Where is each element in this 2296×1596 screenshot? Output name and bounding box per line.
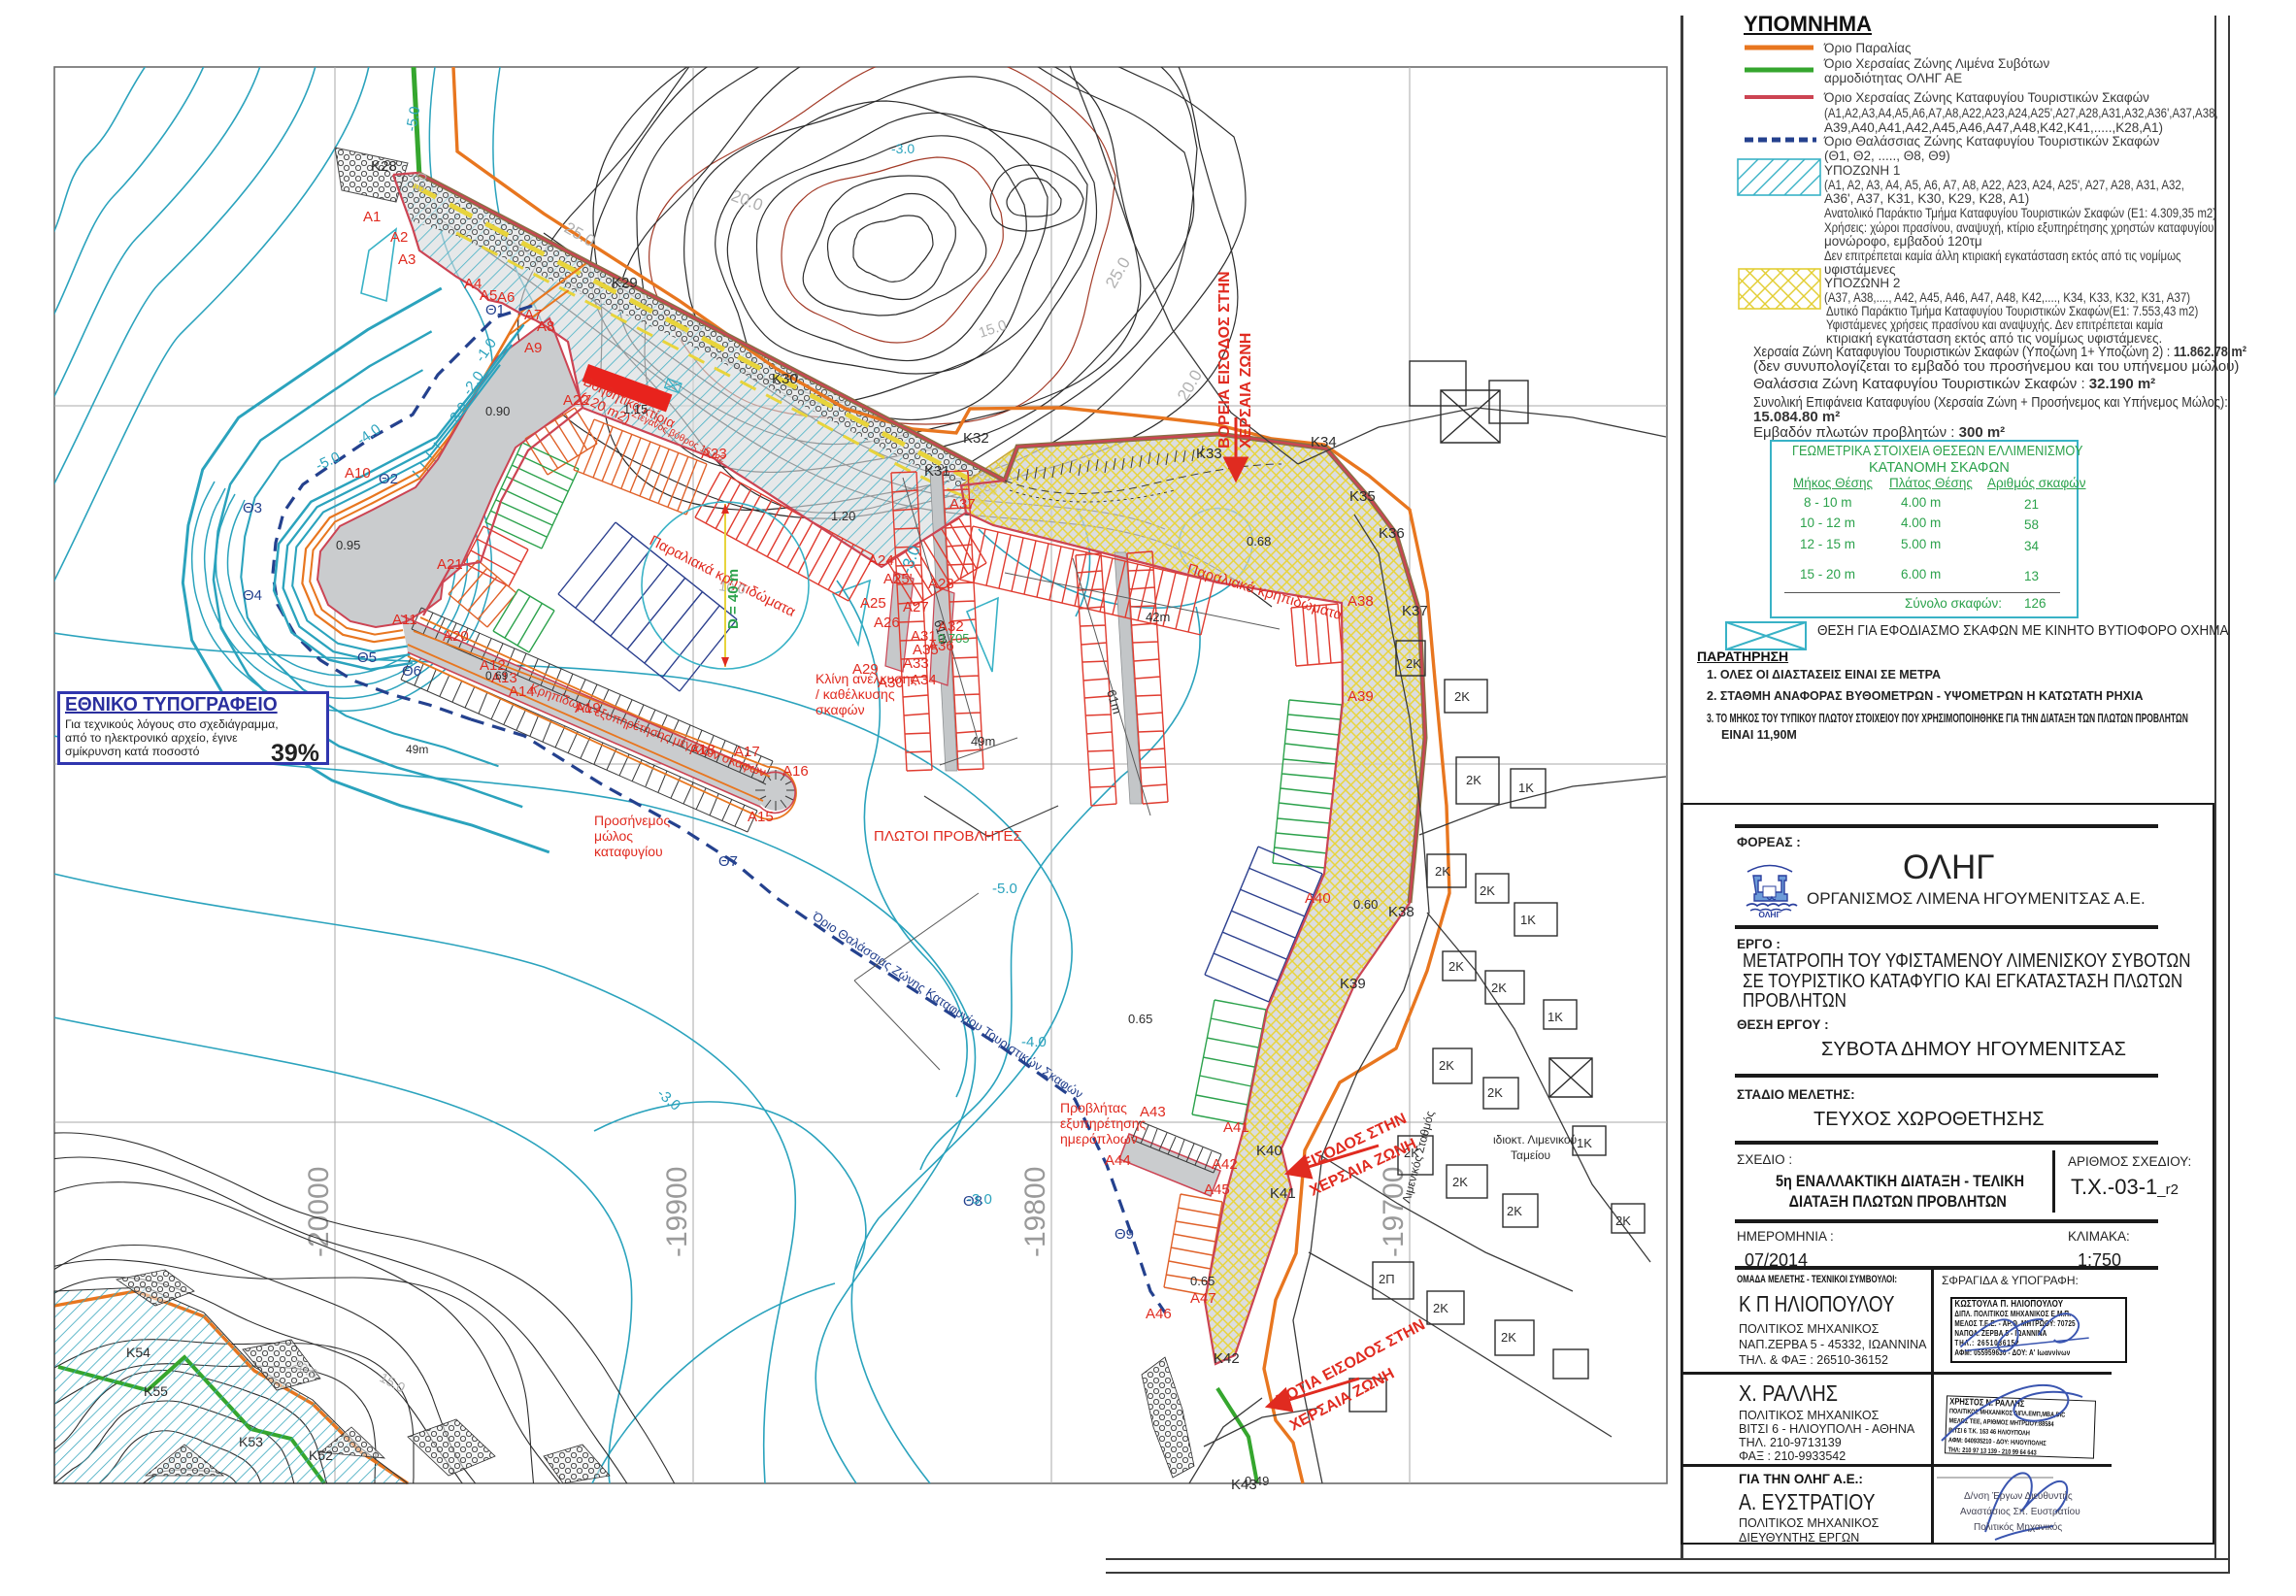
svg-text:25.0: 25.0 [1102, 254, 1134, 291]
svg-text:K54: K54 [126, 1345, 150, 1360]
svg-text:0.65: 0.65 [1128, 1012, 1152, 1026]
svg-text:ιδιοκτ. Λιμενικού: ιδιοκτ. Λιμενικού [1493, 1133, 1577, 1147]
svg-text:Θ1: Θ1 [485, 302, 505, 318]
svg-text:-19800: -19800 [1019, 1167, 1051, 1257]
svg-text:1K: 1K [1547, 1010, 1563, 1024]
svg-text:ΧΕΡΣΑΙΑ ΖΩΝΗ: ΧΕΡΣΑΙΑ ΖΩΝΗ [1238, 333, 1254, 449]
svg-text:A26: A26 [874, 615, 900, 631]
svg-text:Θ4: Θ4 [243, 587, 262, 604]
svg-text:2K: 2K [1452, 1175, 1468, 1189]
svg-text:A41: A41 [1223, 1119, 1249, 1136]
svg-text:A8: A8 [537, 318, 554, 335]
svg-text:A15: A15 [748, 809, 774, 825]
svg-text:K36: K36 [1379, 525, 1405, 542]
svg-text:A38: A38 [1348, 593, 1374, 610]
svg-text:-5.0: -5.0 [992, 881, 1017, 897]
svg-text:A37: A37 [949, 496, 976, 513]
svg-text:2K: 2K [1448, 959, 1464, 974]
svg-text:42m: 42m [1146, 610, 1170, 624]
svg-text:0.60: 0.60 [1353, 897, 1378, 912]
svg-text:K34: K34 [1311, 434, 1337, 450]
svg-text:Αναστάσιος Σπ. Ευστρατίου: Αναστάσιος Σπ. Ευστρατίου [1960, 1506, 2080, 1517]
svg-text:15.0: 15.0 [378, 1370, 409, 1396]
svg-text:Θ7: Θ7 [718, 853, 738, 870]
svg-text:καταφυγίου: καταφυγίου [594, 844, 663, 859]
svg-text:0.49: 0.49 [1245, 1474, 1269, 1488]
svg-text:Θ5: Θ5 [357, 649, 377, 666]
svg-text:2K: 2K [1454, 689, 1470, 704]
svg-text:2K: 2K [1487, 1085, 1503, 1100]
svg-text:49m: 49m [971, 734, 995, 748]
svg-text:2K: 2K [1501, 1330, 1516, 1345]
svg-text:/ καθέλκυσης: / καθέλκυσης [815, 686, 895, 702]
svg-text:2K: 2K [1507, 1204, 1522, 1218]
svg-text:2K: 2K [1480, 883, 1495, 898]
svg-text:-3.0: -3.0 [967, 1191, 992, 1208]
svg-text:Προσήνεμος: Προσήνεμος [594, 813, 670, 828]
svg-text:2K: 2K [1615, 1214, 1631, 1228]
svg-text:A9: A9 [524, 340, 542, 356]
svg-text:A47: A47 [1190, 1290, 1216, 1307]
svg-text:ΟΛΗΓ: ΟΛΗΓ [1758, 910, 1780, 918]
svg-text:Όριο Θαλάσσιας Ζώνης Καταφυγίο: Όριο Θαλάσσιας Ζώνης Καταφυγίου Τουριστι… [809, 908, 1085, 1101]
svg-text:K52: K52 [309, 1447, 333, 1463]
svg-text:A46: A46 [1146, 1306, 1172, 1322]
svg-text:K42: K42 [1214, 1350, 1240, 1367]
svg-text:K38: K38 [1388, 904, 1414, 920]
svg-text:-4.0: -4.0 [354, 421, 384, 449]
svg-text:2K: 2K [1439, 1058, 1454, 1073]
svg-text:A16: A16 [782, 763, 809, 780]
svg-text:0.90: 0.90 [485, 404, 510, 418]
svg-text:A39: A39 [1348, 688, 1374, 705]
svg-text:1K: 1K [1577, 1136, 1592, 1150]
svg-text:Θ6: Θ6 [402, 663, 421, 680]
svg-text:A45: A45 [1204, 1181, 1230, 1198]
svg-text:15.0: 15.0 [977, 317, 1009, 342]
svg-text:0.705: 0.705 [938, 631, 970, 646]
svg-text:2K: 2K [1433, 1301, 1448, 1315]
svg-text:A10: A10 [345, 465, 371, 482]
svg-text:D = 40 m: D = 40 m [725, 569, 742, 629]
svg-text:A44: A44 [1105, 1152, 1131, 1169]
svg-text:A27: A27 [903, 599, 929, 615]
svg-text:Θ3: Θ3 [243, 500, 262, 516]
svg-text:A20: A20 [443, 628, 469, 645]
svg-text:K31: K31 [924, 463, 950, 480]
svg-text:σκαφών: σκαφών [815, 702, 865, 717]
svg-text:K28: K28 [371, 158, 397, 175]
svg-text:0.68: 0.68 [1247, 534, 1271, 549]
svg-text:-3.0: -3.0 [653, 1085, 683, 1114]
svg-text:-4.0: -4.0 [1021, 1034, 1047, 1050]
svg-text:A28: A28 [928, 576, 954, 592]
svg-text:Ταμείου: Ταμείου [1511, 1148, 1550, 1162]
svg-text:Κλίνη ανέλκυσης: Κλίνη ανέλκυσης [815, 671, 917, 686]
svg-text:A25: A25 [860, 595, 886, 612]
svg-text:K39: K39 [1340, 976, 1366, 992]
svg-text:A11: A11 [392, 612, 417, 628]
svg-text:A21: A21 [437, 556, 463, 573]
svg-text:A42: A42 [1212, 1156, 1238, 1173]
svg-text:ημερόπλοων: ημερόπλοων [1060, 1131, 1138, 1147]
svg-text:ΒΟΡΕΙΑ ΕΙΣΟΔΟΣ ΣΤΗΝ: ΒΟΡΕΙΑ ΕΙΣΟΔΟΣ ΣΤΗΝ [1216, 271, 1233, 449]
svg-text:Κρηπίδωμα εξυπηρέτησης μεγάλων: Κρηπίδωμα εξυπηρέτησης μεγάλων σκαφών [528, 681, 768, 780]
svg-text:-3.0: -3.0 [891, 141, 915, 156]
svg-text:1K: 1K [1518, 781, 1534, 795]
svg-text:K53: K53 [239, 1434, 263, 1449]
svg-text:-19900: -19900 [661, 1167, 693, 1257]
svg-text:Δ/νση Έργων Διευθυντής: Δ/νση Έργων Διευθυντής [1964, 1490, 2073, 1502]
svg-text:A2: A2 [390, 229, 408, 246]
svg-text:A40: A40 [1305, 890, 1331, 907]
svg-text:2Π: 2Π [1379, 1272, 1395, 1286]
svg-text:0.95: 0.95 [336, 538, 360, 552]
svg-text:0.69: 0.69 [485, 669, 509, 682]
svg-text:0.65: 0.65 [1190, 1274, 1215, 1288]
svg-text:20.0: 20.0 [1174, 367, 1206, 404]
svg-text:61m: 61m [1104, 688, 1124, 715]
svg-text:K32: K32 [963, 430, 989, 447]
svg-text:K55: K55 [144, 1383, 168, 1399]
svg-text:A3: A3 [398, 251, 416, 268]
svg-text:2K: 2K [1406, 656, 1421, 671]
svg-text:K30: K30 [772, 371, 798, 387]
svg-text:1K: 1K [1520, 913, 1536, 927]
svg-text:49m: 49m [406, 743, 428, 756]
svg-text:K40: K40 [1256, 1143, 1282, 1159]
svg-text:K35: K35 [1349, 488, 1376, 505]
svg-text:K37: K37 [1402, 603, 1428, 619]
svg-text:ΠΛΩΤΟΙ ΠΡΟΒΛΗΤΕΣ: ΠΛΩΤΟΙ ΠΡΟΒΛΗΤΕΣ [874, 828, 1022, 845]
svg-text:Προβλήτας: Προβλήτας [1060, 1100, 1127, 1115]
svg-text:-5.0: -5.0 [403, 105, 423, 132]
svg-text:1.15: 1.15 [623, 402, 648, 416]
svg-text:-5.0: -5.0 [314, 449, 344, 474]
svg-text:εξυπηρέτησης: εξυπηρέτησης [1060, 1115, 1147, 1131]
svg-text:K41: K41 [1270, 1185, 1296, 1202]
svg-text:K29: K29 [612, 275, 638, 291]
svg-text:2K: 2K [1466, 773, 1481, 787]
svg-text:Θ9: Θ9 [1115, 1226, 1134, 1243]
svg-text:2K: 2K [1435, 864, 1450, 879]
svg-text:A24: A24 [868, 552, 894, 569]
svg-text:2K: 2K [1491, 981, 1507, 995]
svg-text:μώλος: μώλος [594, 828, 633, 844]
svg-text:Θ2: Θ2 [379, 471, 398, 487]
svg-text:Πολιτικός Μηχανικός: Πολιτικός Μηχανικός [1974, 1521, 2062, 1533]
svg-text:A1: A1 [363, 209, 381, 225]
svg-text:1.20: 1.20 [831, 509, 855, 523]
